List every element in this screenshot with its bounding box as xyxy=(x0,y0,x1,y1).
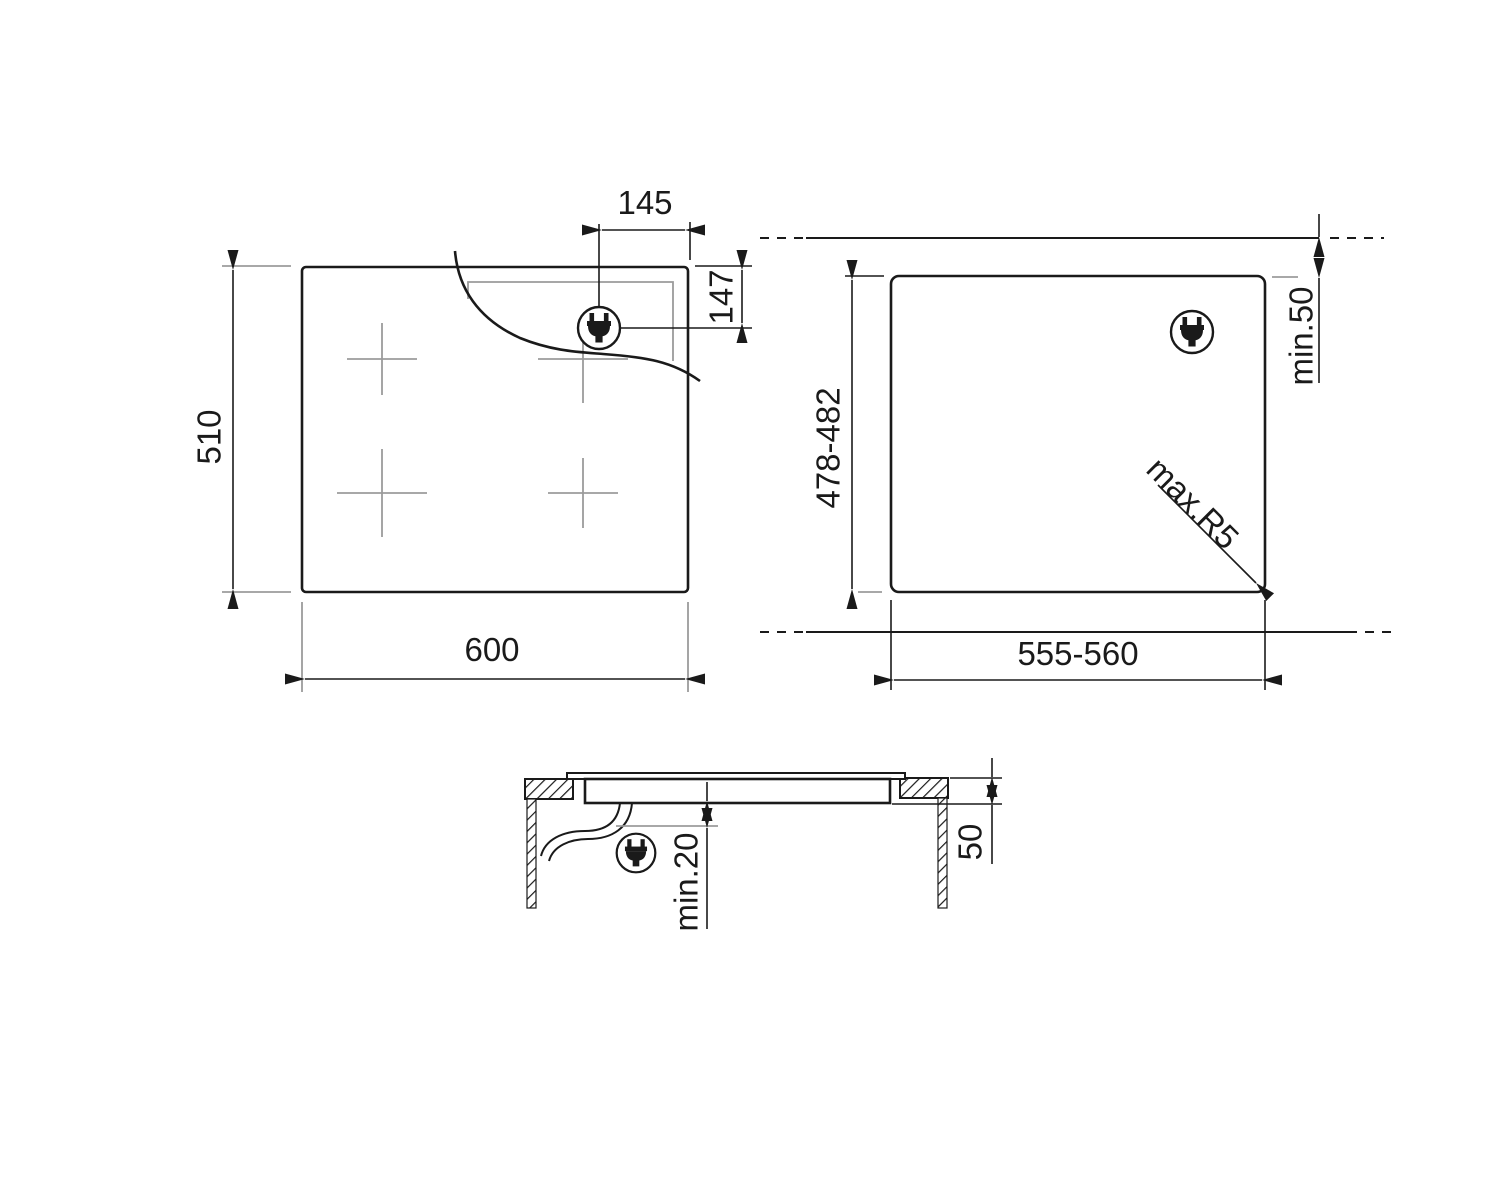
power-plug-icon xyxy=(578,307,620,349)
installation-drawing: 145 147 510 600 478-482 xyxy=(0,0,1500,1200)
hob-outline xyxy=(302,267,688,592)
dim-label-145: 145 xyxy=(617,184,672,221)
dim-label-478-482: 478-482 xyxy=(810,387,847,508)
cutout-view: 478-482 min.50 max.R5 555-560 xyxy=(760,214,1392,690)
dim-label-600: 600 xyxy=(464,631,519,668)
plan-view: 145 147 510 600 xyxy=(191,184,752,692)
hob-body-profile xyxy=(585,779,890,803)
dim-label-min50: min.50 xyxy=(1283,286,1320,385)
power-plug-icon xyxy=(617,834,656,873)
worktop-section-left xyxy=(525,779,573,799)
power-plug-icon xyxy=(1171,311,1213,353)
dim-label-555-560: 555-560 xyxy=(1017,635,1138,672)
dim-label-min20: min.20 xyxy=(668,832,705,931)
worktop-section-right xyxy=(900,778,948,798)
dim-label-147: 147 xyxy=(703,269,740,324)
cabinet-side-left xyxy=(527,799,536,908)
section-view: min.20 50 xyxy=(525,758,1002,932)
cabinet-side-right xyxy=(938,798,947,908)
dim-label-510: 510 xyxy=(191,409,228,464)
mains-cable xyxy=(541,803,620,856)
dim-label-50: 50 xyxy=(952,824,989,861)
